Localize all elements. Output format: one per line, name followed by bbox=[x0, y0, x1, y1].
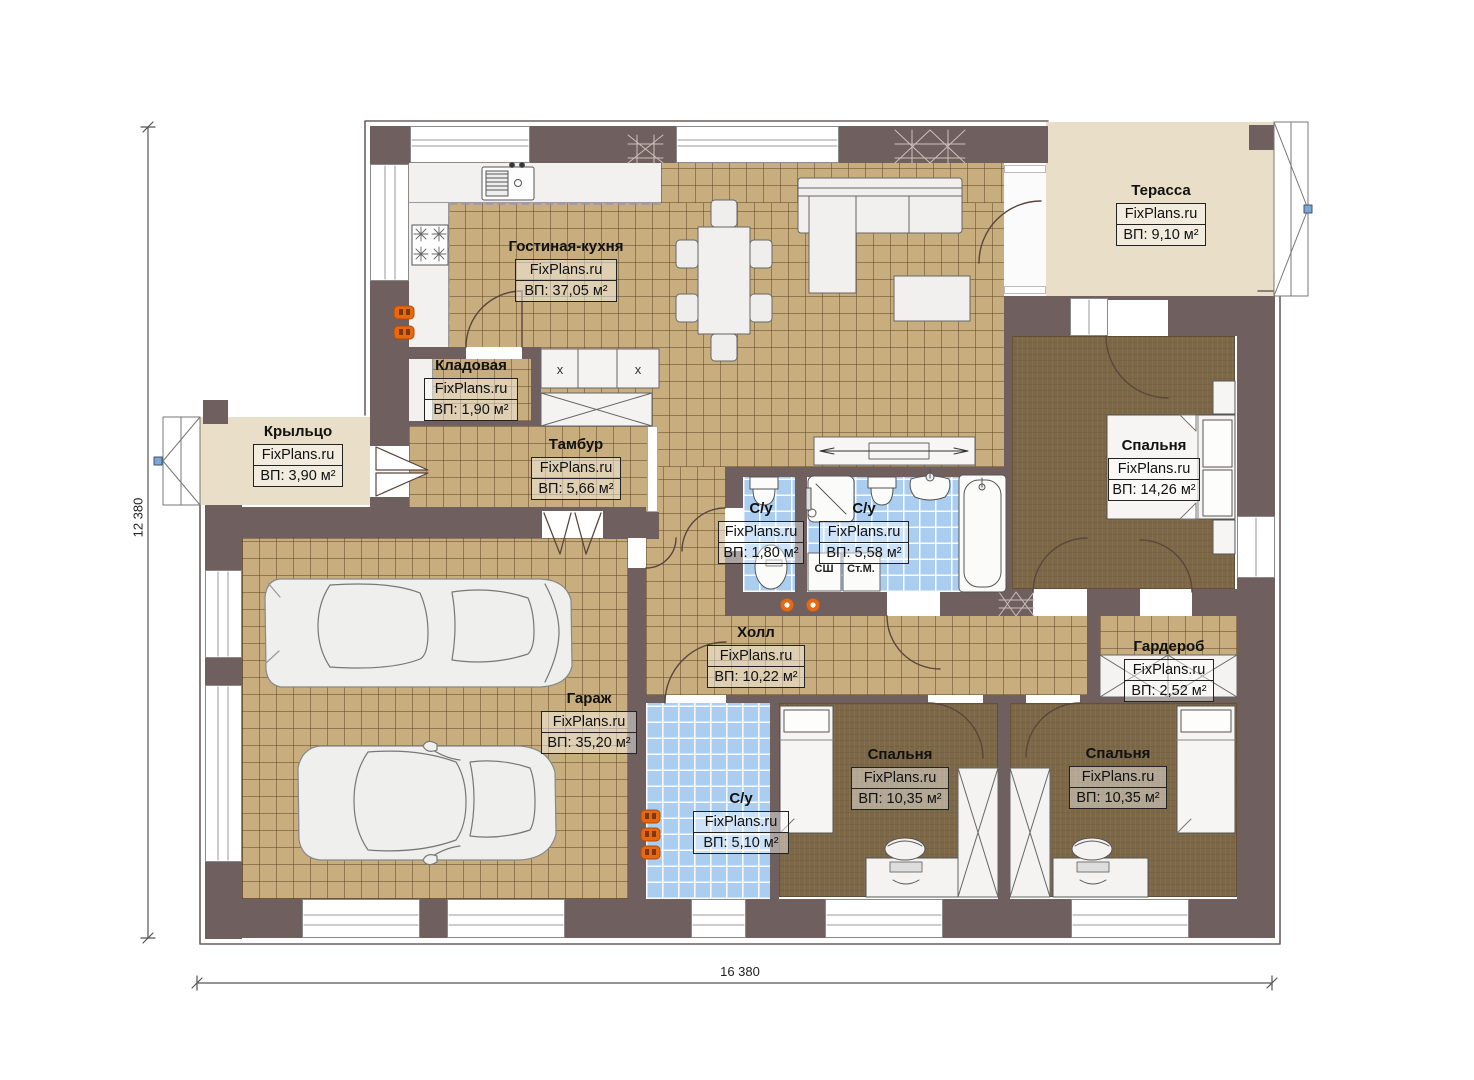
svg-text:СШ: СШ bbox=[815, 563, 834, 575]
svg-text:Ст.М.: Ст.М. bbox=[847, 563, 875, 575]
svg-text:x: x bbox=[635, 362, 642, 377]
